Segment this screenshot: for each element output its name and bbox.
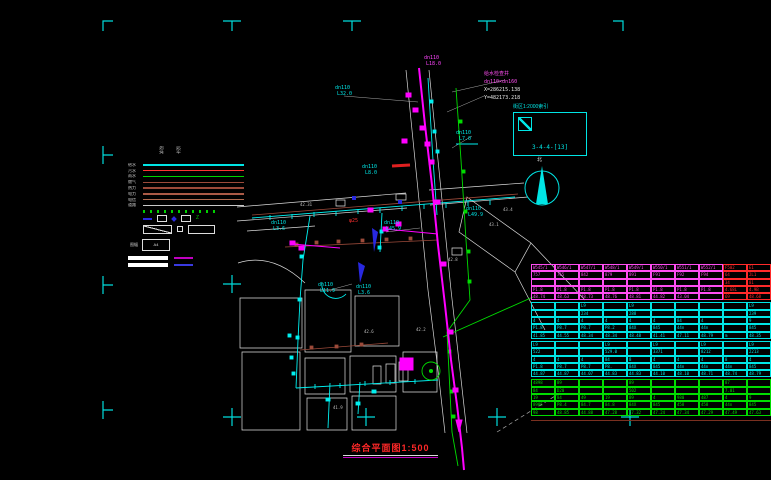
table-row: 1984491989498048749 (531, 394, 771, 401)
table-cell: L9 (627, 302, 651, 309)
table-cell: 845 (747, 324, 771, 331)
table-cell: 81 (747, 279, 771, 286)
legend-row-line (143, 193, 244, 194)
table-cell: 502 (627, 387, 651, 394)
pipe-data-table: W545/1W546/1W547/1W548/1W549/1W550/1W551… (531, 264, 771, 416)
table-cell: 47.63 (747, 409, 771, 416)
table-cell (627, 279, 651, 286)
legend-column-headers: 现状 设计 (128, 146, 244, 162)
table-row: 3481 (531, 279, 771, 286)
table-cell: 48.48 (627, 332, 651, 339)
table-cell (675, 387, 699, 394)
table-cell (555, 279, 579, 286)
table-cell: 458 (699, 401, 723, 408)
table-cell: 239 (747, 310, 771, 317)
table-cell: P1.8 (531, 324, 555, 331)
legend-row-label: 污水 (128, 169, 143, 173)
north-arrow (525, 166, 559, 205)
magenta-line-icon (174, 257, 193, 259)
table-cell: L9 (747, 302, 771, 309)
table-cell: 47.29 (699, 409, 723, 416)
table-cell: 9 (747, 394, 771, 401)
table-cell: 4 (651, 317, 675, 324)
table-cell (603, 310, 627, 317)
legend-row-line (143, 164, 244, 165)
table-cell (603, 387, 627, 394)
table-cell: P8.7 (579, 324, 603, 331)
table-cell: 4 (531, 356, 555, 363)
solid-bar-icon (128, 256, 168, 260)
table-cell: 8 (627, 356, 651, 363)
table-cell (651, 302, 675, 309)
table-cell: m (723, 332, 747, 339)
map-label: L3.6 (358, 291, 370, 296)
table-cell (579, 348, 603, 355)
table-cell: P8.4 (555, 401, 579, 408)
table-cell: 48.63 (555, 293, 579, 300)
green-symbol-icon: Z (196, 216, 199, 221)
map-label: L7.0 (459, 137, 471, 142)
table-cell: E1 (747, 264, 771, 271)
table-cell: 44n (675, 324, 699, 331)
map-label: L45.9 (386, 227, 401, 232)
table-cell: P1.8 (699, 286, 723, 293)
map-label: 42.6 (364, 330, 374, 334)
table-cell: 48.68 (747, 293, 771, 300)
table-cell: 44n (723, 401, 747, 408)
table-cell: 845 (651, 324, 675, 331)
water-pipeline-cyan (252, 78, 515, 428)
title-block: 综合平面图1:500 (343, 441, 438, 458)
map-label: 42.2 (416, 328, 426, 332)
legend-row-line (143, 176, 244, 177)
table-cell: 4 (699, 317, 723, 324)
table-cell: 4 (675, 356, 699, 363)
table-cell (555, 310, 579, 317)
table-cell: 842 (579, 271, 603, 278)
table-row: 8985P8.484.784.884X84545845844n845 (531, 401, 771, 408)
table-cell (723, 310, 747, 317)
table-cell: 48.71 (699, 370, 723, 377)
table-cell: P1.8 (555, 286, 579, 293)
table-cell: 47.11 (675, 332, 699, 339)
table-cell (723, 348, 747, 355)
legend-row-line (143, 170, 244, 171)
table-cell: F94 (699, 271, 723, 278)
table-row: L9L9L9L9L9 (531, 341, 771, 348)
table-cell: 41.85 (531, 332, 555, 339)
table-cell (603, 302, 627, 309)
table-cell: L9 (747, 341, 771, 348)
table-cell (603, 279, 627, 286)
table-cell: 84 (675, 317, 699, 324)
table-cell: 44.10 (651, 370, 675, 377)
blue-diamond-icon (171, 216, 177, 222)
detail-sheet-ref: 3-4-4-[13] (514, 144, 586, 151)
table-cell: F92 (675, 271, 699, 278)
table-cell: 8985 (531, 401, 555, 408)
table-cell: P8.7 (579, 363, 603, 370)
table-cell: P8.7 (555, 324, 579, 331)
table-cell: 84 (603, 356, 627, 363)
table-cell: 4 (651, 356, 675, 363)
legend-row-line (143, 187, 244, 188)
table-cell: 8212 (699, 348, 723, 355)
table-cell (651, 387, 675, 394)
table-cell: 44.83 (603, 370, 627, 377)
table-row: 234288239 (531, 310, 771, 317)
frame-label: 图幅 (130, 242, 138, 248)
table-cell: 4 (651, 394, 675, 401)
table-row: W545/1W546/1W547/1W548/1W549/1W550/1W551… (531, 264, 771, 271)
table-cell: 48.79 (699, 332, 723, 339)
table-cell (651, 310, 675, 317)
legend-frame-row: 图幅 A4 (130, 239, 244, 251)
table-cell: 48.34 (603, 332, 627, 339)
table-cell (675, 279, 699, 286)
table-cell: 2L1 (747, 271, 771, 278)
map-label: 43.1 (489, 223, 499, 227)
table-cell (675, 310, 699, 317)
table-cell: P8. (603, 363, 627, 370)
table-cell: 4898 (531, 379, 555, 386)
table-cell: 980 (675, 394, 699, 401)
table-cell: 19 (603, 394, 627, 401)
table-cell: 44.83 (627, 370, 651, 377)
legend-row-label: 给水 (128, 163, 143, 167)
table-cell: 48.35 (747, 332, 771, 339)
table-cell: 48.76 (603, 293, 627, 300)
legend-row-label: 电信 (128, 198, 143, 202)
table-cell: L9 (603, 341, 627, 348)
table-cell (675, 302, 699, 309)
table-cell (675, 341, 699, 348)
table-cell: 98 (531, 409, 555, 416)
map-label: L8.0 (365, 171, 377, 176)
table-cell: 48.74 (531, 293, 555, 300)
table-cell: 9 (747, 317, 771, 324)
table-cell: 47.49 (723, 409, 747, 416)
map-label: L32.0 (337, 92, 352, 97)
table-cell: 4 (531, 317, 555, 324)
table-cell (699, 293, 723, 300)
table-cell (579, 379, 603, 386)
table-cell: W547/1 (579, 264, 603, 271)
table-cell: 47.34 (675, 409, 699, 416)
blue-line-icon (174, 264, 193, 266)
table-cell: 84X (627, 324, 651, 331)
table-row: L9L9L9 (531, 302, 771, 309)
hydrant-mark-red (392, 165, 410, 166)
solid-bar-icon (128, 263, 168, 267)
table-cell: 84.7 (579, 401, 603, 408)
table-cell: 41.41 (651, 332, 675, 339)
table-cell: F91 (651, 271, 675, 278)
map-label: 43.4 (503, 208, 513, 212)
table-cell: 48.34 (579, 332, 603, 339)
table-cell: 4 (555, 317, 579, 324)
table-cell (699, 302, 723, 309)
map-label: 42.8 (448, 258, 458, 262)
table-cell: 4 (579, 356, 603, 363)
table-cell: W549/1 (627, 264, 651, 271)
table-row: P1.8P8.7P8.7P8.84X84544n44n44n845 (531, 363, 771, 370)
table-cell: 2213 (747, 348, 771, 355)
table-cell: P1.8 (579, 286, 603, 293)
table-cell (555, 302, 579, 309)
table-cell (675, 379, 699, 386)
table-cell: 48.73 (579, 293, 603, 300)
table-cell: 4 (555, 356, 579, 363)
blue-dash-icon (143, 218, 152, 220)
table-cell: 845 (651, 401, 675, 408)
table-cell: 44n (699, 324, 723, 331)
detail-box-frame: 3-4-4-[13] (513, 112, 587, 156)
table-row: 44.8744.8744.0744.8344.8344.1048.1048.71… (531, 370, 771, 377)
table-cell (723, 317, 747, 324)
table-cell: L9 (651, 341, 675, 348)
title-underline-white (343, 455, 438, 456)
table-cell (699, 279, 723, 286)
table-cell: 48.10 (675, 370, 699, 377)
table-cell: 522 (531, 348, 555, 355)
legend: 现状 设计 给水污水雨水燃气热力电力电信道路 Z 图幅 A4 (128, 146, 244, 267)
table-cell: 234 (579, 310, 603, 317)
table-cell: 34 (723, 279, 747, 286)
table-cell: 529.0 (603, 348, 627, 355)
table-cell (699, 387, 723, 394)
table-row: 84D205027.01 (531, 387, 771, 394)
table-cell: D20 (555, 387, 579, 394)
map-label: L3.6 (273, 227, 285, 232)
well-box-icon (181, 215, 191, 222)
table-cell: 3371 (651, 348, 675, 355)
table-cell: 84 (531, 387, 555, 394)
table-cell: P8.2 (603, 324, 627, 331)
table-cell: 4 (723, 394, 747, 401)
legend-header-existing: 现状 (158, 146, 164, 154)
legend-symbol-row: Z (143, 216, 244, 222)
table-cell: 47.32 (627, 409, 651, 416)
small-square-icon (177, 226, 183, 232)
detail-reference-box: 街区1:2000索引 3-4-4-[13] (513, 103, 589, 156)
frame-size-box: A4 (142, 239, 170, 251)
table-cell (723, 324, 747, 331)
table-cell: 7.01 (723, 387, 747, 394)
table-cell: P1.8 (651, 286, 675, 293)
table-cell (675, 348, 699, 355)
table-cell (747, 379, 771, 386)
table-cell: 4.9B (747, 286, 771, 293)
table-cell: W548/1 (603, 264, 627, 271)
table-cell: 4.68L (723, 286, 747, 293)
table-cell: 48.74 (723, 370, 747, 377)
table-cell: L9 (699, 341, 723, 348)
table-cell: 84.8 (603, 401, 627, 408)
table-cell: 47.24 (651, 409, 675, 416)
table-cell (579, 341, 603, 348)
table-cell: 49 (579, 394, 603, 401)
table-cell: 84X (627, 363, 651, 370)
table-cell: 288 (627, 310, 651, 317)
table-cell (699, 310, 723, 317)
table-row: 48.7448.6348.7348.7648.8144.8243.046948.… (531, 293, 771, 300)
table-cell: 845 (747, 401, 771, 408)
legend-line-rows: 给水污水雨水燃气热力电力电信道路 (128, 162, 244, 208)
table-row: 44484844484 (531, 356, 771, 363)
table-cell: W552/1 (699, 264, 723, 271)
table-cell (627, 341, 651, 348)
table-cell: 891 (627, 271, 651, 278)
table-cell (651, 279, 675, 286)
table-cell: W545/1 (531, 264, 555, 271)
table-cell (531, 302, 555, 309)
table-cell (651, 379, 675, 386)
table-cell: P1.8 (603, 286, 627, 293)
table-cell: 44.82 (651, 293, 675, 300)
table-cell (603, 379, 627, 386)
map-label: L11.9 (320, 289, 335, 294)
table-cell: 44n (675, 363, 699, 370)
map-label: φ25 (349, 219, 358, 224)
table-cell: 89 (627, 394, 651, 401)
table-cell: P1.8 (627, 286, 651, 293)
legend-row-line (143, 182, 244, 183)
table-cell (531, 279, 555, 286)
table-cell: 89 (627, 379, 651, 386)
legend-row-label: 雨水 (128, 174, 143, 178)
table-cell: W551/1 (675, 264, 699, 271)
table-cell (627, 348, 651, 355)
legend-row-label: 燃气 (128, 180, 143, 184)
map-label: 42.31 (300, 203, 312, 207)
table-cell: P1.8 (531, 286, 555, 293)
legend-row-label: 道路 (128, 203, 143, 207)
legend-row-label: 电力 (128, 192, 143, 196)
table-cell: 84X (627, 401, 651, 408)
table-cell: 8 (723, 356, 747, 363)
table-cell: 48.85 (555, 409, 579, 416)
table-row: P1.8P8.7P8.7P8.284X84544n44n845 (531, 324, 771, 331)
table-cell: 4 (627, 317, 651, 324)
title-underline-magenta (343, 457, 438, 458)
legend-row: 道路 (128, 203, 244, 209)
table-cell: 48.81 (627, 293, 651, 300)
coordinate-y: Y=482173.218 (484, 94, 520, 102)
table-cell: 4 (603, 317, 627, 324)
table-cell: P1.8 (531, 363, 555, 370)
table-cell: 4 (579, 317, 603, 324)
table-cell: 19 (531, 394, 555, 401)
well-box-icon (157, 215, 167, 222)
legend-row-label: 热力 (128, 186, 143, 190)
table-cell (723, 341, 747, 348)
legend-row-line (143, 205, 244, 206)
table-cell: 87 (723, 379, 747, 386)
table-cell: 44.88 (579, 409, 603, 416)
table-row: 522529.0337182122213 (531, 348, 771, 355)
table-cell: 4 (699, 356, 723, 363)
legend-header-design: 设计 (175, 146, 181, 154)
table-cell: 44n (699, 363, 723, 370)
detail-box-title: 街区1:2000索引 (513, 103, 589, 110)
table-cell: 487 (699, 394, 723, 401)
table-cell: 44.07 (579, 370, 603, 377)
table-cell (555, 348, 579, 355)
table-cell: 48.79 (747, 370, 771, 377)
table-cell: 43.04 (675, 293, 699, 300)
cad-drawing-canvas[interactable]: 给水检查井 dn110×dn160 X=286215.138 Y=482173.… (0, 0, 771, 480)
table-cell: 4 (747, 356, 771, 363)
legend-dots-row (143, 210, 215, 213)
legend-row-line (143, 199, 244, 200)
map-label: L18.0 (426, 62, 441, 67)
table-cell: W546/1 (555, 264, 579, 271)
table-cell (747, 387, 771, 394)
table-cell: 44n (723, 363, 747, 370)
table-row: 9848.8544.8847.2847.3247.2447.3447.2947.… (531, 409, 771, 416)
table-row: P1.8P1.8P1.8P1.8P1.8P1.8P1.8P1.84.68L4.9… (531, 286, 771, 293)
table-cell (579, 387, 603, 394)
table-cell: 47.28 (603, 409, 627, 416)
hatch-square-icon (518, 117, 532, 131)
table-underline (531, 420, 771, 421)
table-cell: L9 (579, 302, 603, 309)
table-cell: 89 (555, 379, 579, 386)
outline-rect-icon (188, 225, 215, 234)
table-cell: 64 (723, 271, 747, 278)
table-cell: 845 (747, 363, 771, 370)
table-row: 4898898987 (531, 379, 771, 386)
table-cell (699, 379, 723, 386)
coordinate-x: X=286215.138 (484, 86, 520, 94)
table-cell (579, 279, 603, 286)
table-cell (723, 302, 747, 309)
sewer-pipeline-magenta (290, 68, 464, 470)
table-cell: P1.8 (675, 286, 699, 293)
table-row: 757765842879891F91F92F94642L1 (531, 271, 771, 278)
diagonal-rect-icon (143, 225, 172, 234)
table-cell: L9 (531, 341, 555, 348)
table-cell: 44.55 (555, 332, 579, 339)
table-cell: 458 (675, 401, 699, 408)
table-cell: 845 (651, 363, 675, 370)
table-cell: 84 (555, 394, 579, 401)
drawing-title: 综合平面图1:500 (343, 441, 438, 454)
legend-hatch-row (143, 225, 244, 234)
map-label: 41.9 (333, 406, 343, 410)
map-label: 北 (537, 158, 542, 163)
table-cell: F502 (723, 264, 747, 271)
table-cell: 765 (555, 271, 579, 278)
table-cell: 44.87 (531, 370, 555, 377)
table-row: 41.8544.5548.3448.3448.4841.4147.1148.79… (531, 332, 771, 339)
table-cell: 69 (723, 293, 747, 300)
junction-annotation: 给水检查井 dn110×dn160 X=286215.138 Y=482173.… (484, 70, 520, 102)
table-cell (555, 341, 579, 348)
table-row: 4444448449 (531, 317, 771, 324)
table-cell: 44.87 (555, 370, 579, 377)
table-cell: W550/1 (651, 264, 675, 271)
junction-name: 给水检查井 (484, 70, 520, 78)
map-label: L49.9 (468, 213, 483, 218)
table-cell: 757 (531, 271, 555, 278)
junction-pipe-size: dn110×dn160 (484, 78, 520, 86)
legend-bars (128, 256, 244, 267)
table-cell: P8.7 (555, 363, 579, 370)
table-cell (531, 310, 555, 317)
table-cell: 879 (603, 271, 627, 278)
